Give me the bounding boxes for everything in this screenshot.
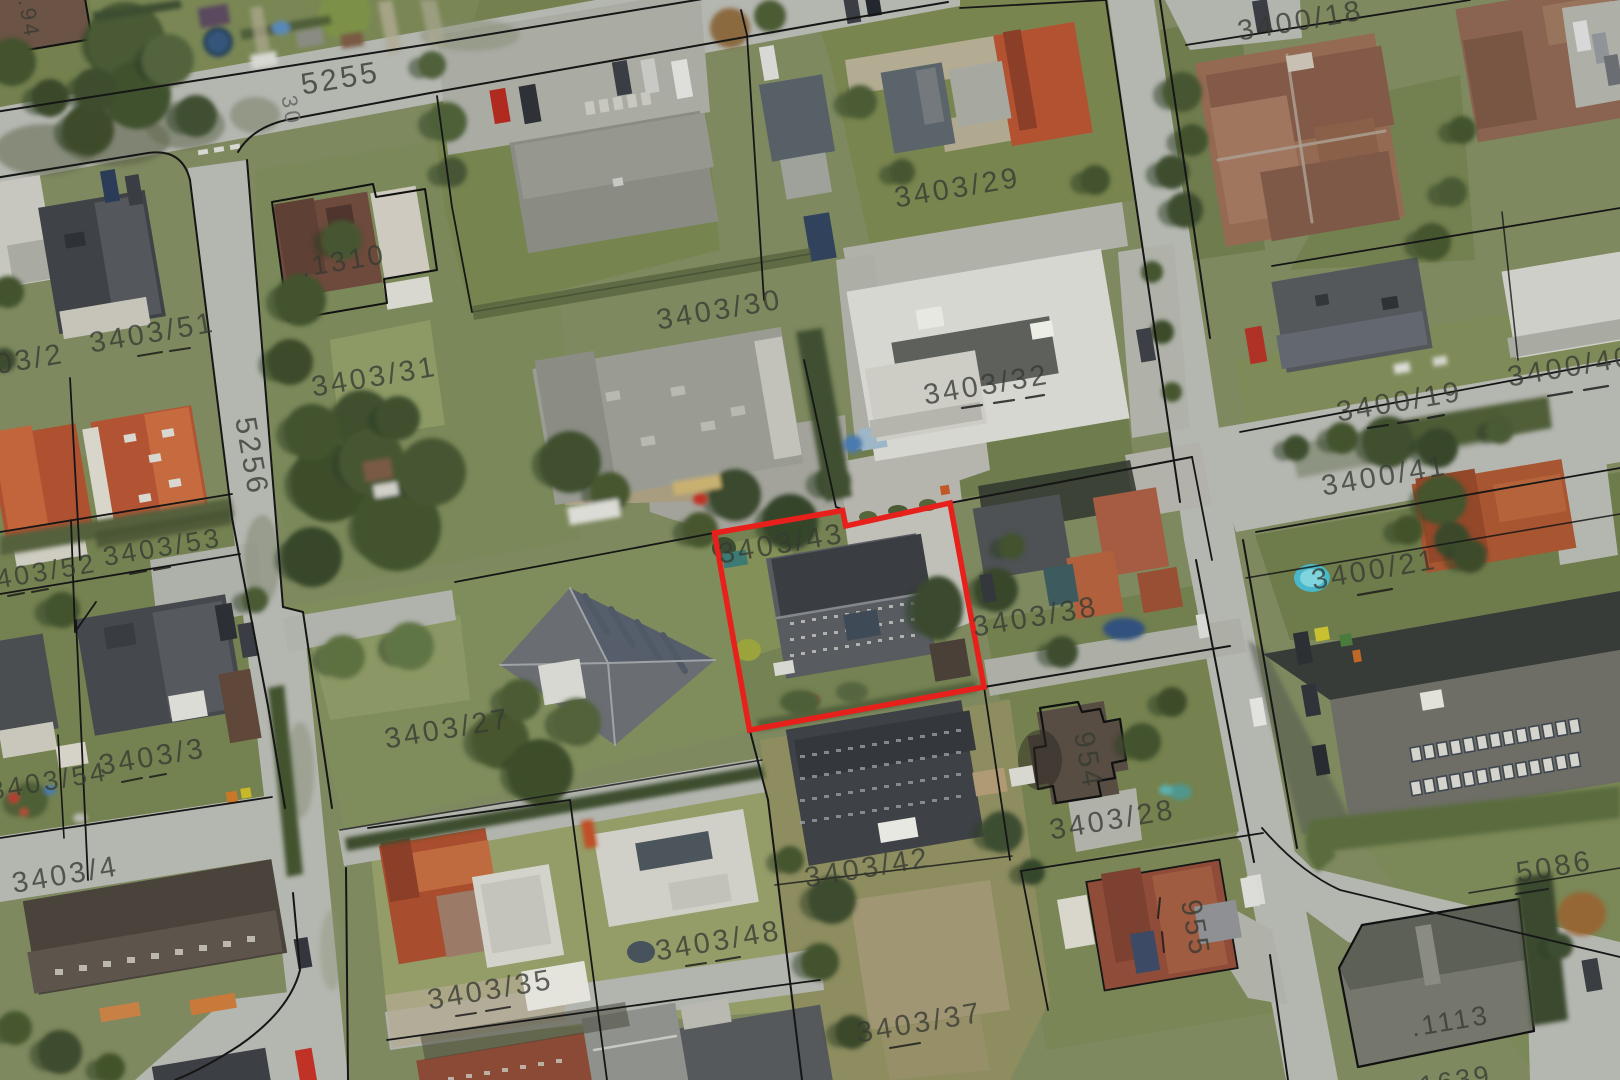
svg-text:30: 30 bbox=[276, 93, 306, 128]
